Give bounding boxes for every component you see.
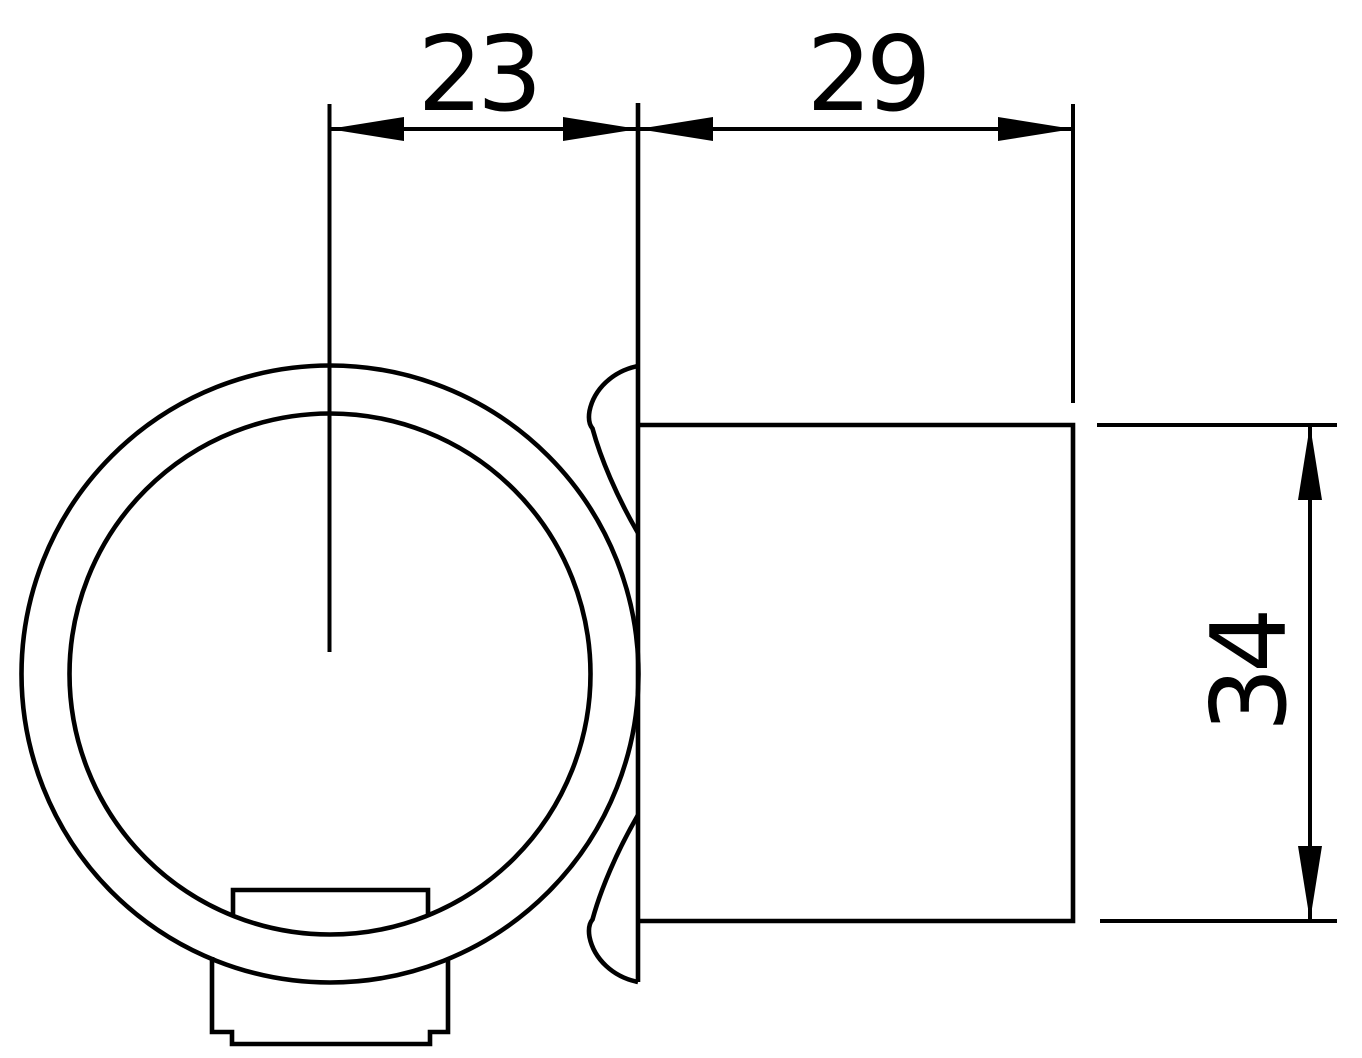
dim-34-arrow-up-icon	[1298, 425, 1322, 500]
dim-23-arrow-right-icon	[563, 117, 638, 141]
dim-34-label: 34	[1190, 613, 1310, 733]
top-fillet-curve	[589, 366, 638, 533]
dim-34-arrow-down-icon	[1298, 846, 1322, 921]
dim-29-arrow-left-icon	[638, 117, 713, 141]
technical-drawing: 23 29 34	[0, 0, 1362, 1058]
dim-29-label: 29	[806, 15, 925, 135]
set-screw-head	[233, 890, 428, 917]
dim-23-arrow-left-icon	[329, 117, 404, 141]
fitting-outline	[22, 103, 1074, 1044]
dim-29-arrow-right-icon	[998, 117, 1073, 141]
dimension-socket-diameter: 34	[1097, 425, 1337, 921]
dimension-center-to-flange: 23	[329, 15, 638, 141]
bottom-fillet-curve	[589, 815, 638, 982]
socket-body-outline	[638, 425, 1073, 921]
dimension-socket-length: 29	[638, 15, 1073, 403]
dim-23-label: 23	[417, 15, 536, 135]
drawing-canvas: 23 29 34	[0, 0, 1362, 1058]
